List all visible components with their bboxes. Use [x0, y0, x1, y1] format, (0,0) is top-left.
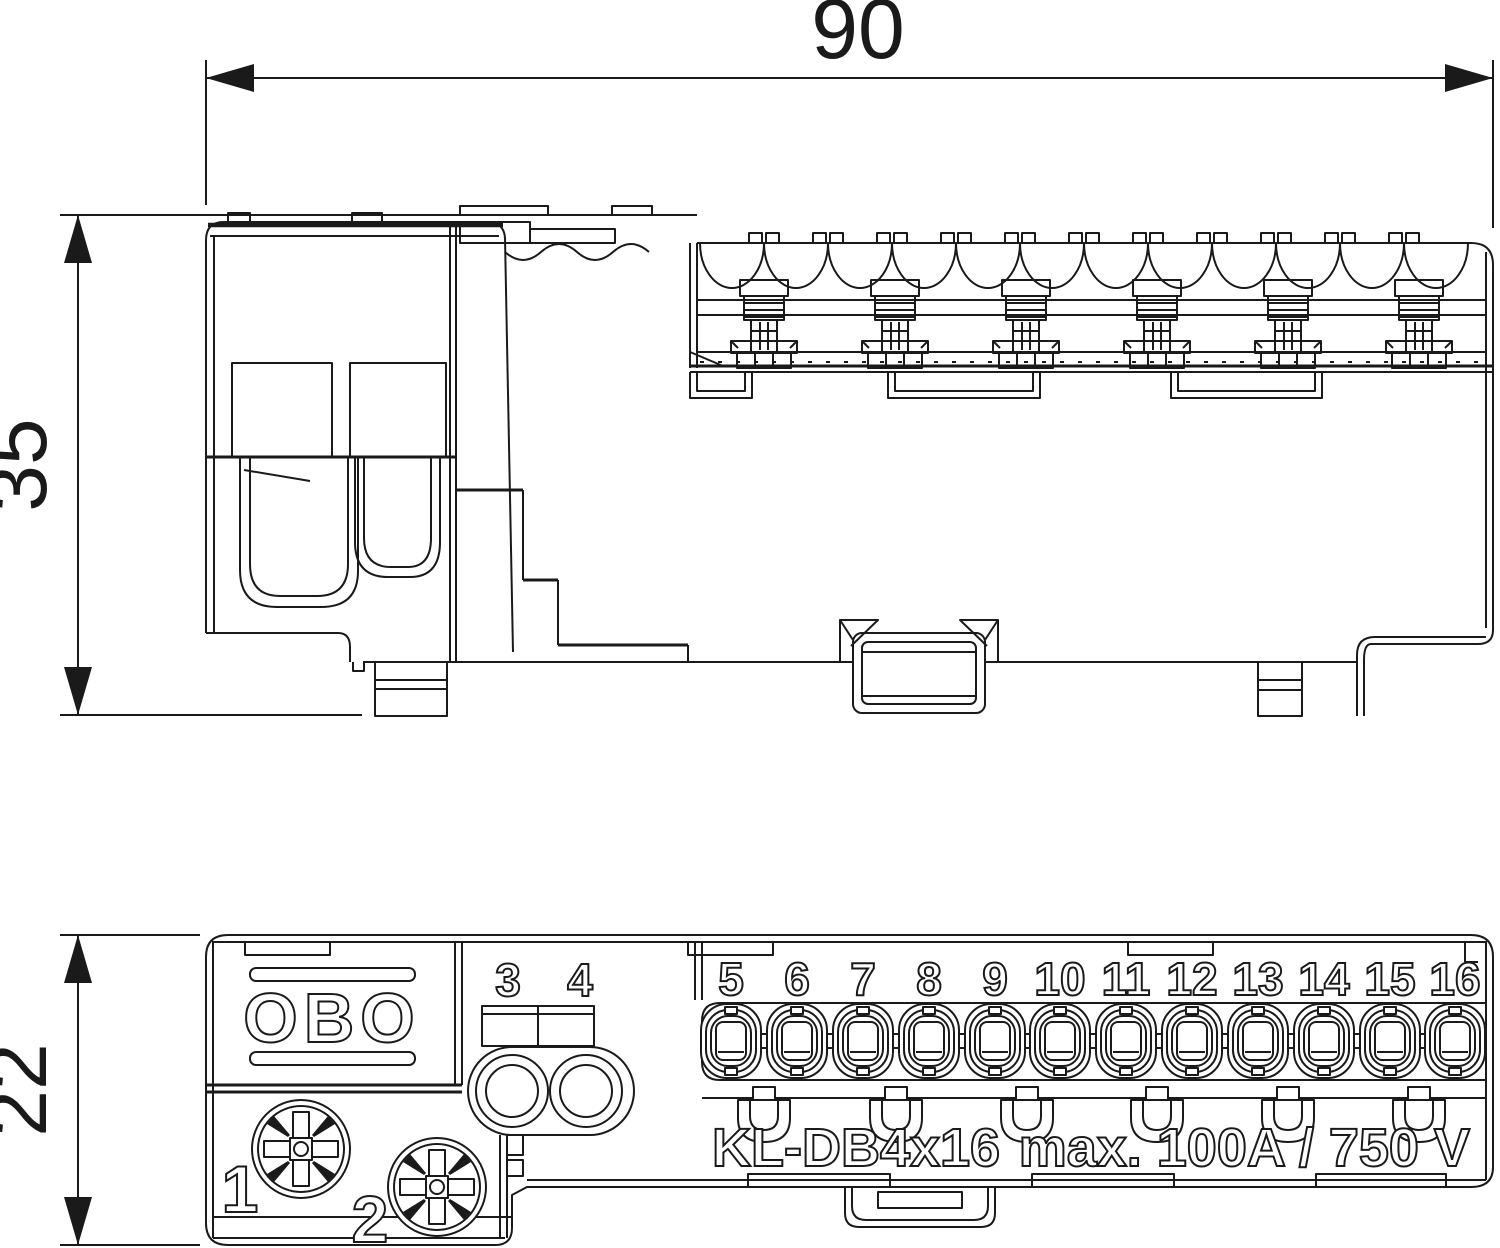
plan-view: OBO 3 4 1 2 — [206, 935, 1493, 1248]
obo-logo: OBO — [243, 979, 420, 1057]
dimension-depth-22: 22 — [0, 935, 200, 1245]
terminal-label: 10 — [1034, 953, 1085, 1005]
dim-width-label: 90 — [811, 0, 904, 76]
terminal-label: 11 — [1102, 953, 1151, 1005]
dimension-width-90: 90 — [206, 0, 1493, 228]
terminal-label: 9 — [982, 953, 1008, 1005]
port-3-label: 3 — [495, 954, 521, 1006]
terminal-label: 7 — [850, 953, 876, 1005]
technical-drawing: 90 35 22 — [0, 0, 1500, 1248]
terminal-label: 15 — [1364, 953, 1415, 1005]
dimension-height-35: 35 — [0, 215, 448, 715]
model-label: KL-DB4x16 — [712, 1118, 1000, 1178]
terminal-label: 13 — [1232, 953, 1283, 1005]
terminal-label: 6 — [784, 953, 810, 1005]
port-4-label: 4 — [567, 954, 593, 1006]
screw-1 — [252, 1100, 350, 1198]
dim-plan-depth-label: 22 — [0, 1043, 64, 1136]
screw-2 — [388, 1138, 486, 1236]
terminal-label: 12 — [1166, 953, 1217, 1005]
drawing-canvas: 90 35 22 — [0, 0, 1500, 1248]
din-clip-side — [840, 620, 998, 713]
screw-2-label: 2 — [352, 1182, 389, 1248]
terminal-label: 8 — [916, 953, 942, 1005]
terminal-label: 16 — [1429, 953, 1480, 1005]
dim-side-height-label: 35 — [0, 418, 64, 511]
terminal-label: 14 — [1298, 953, 1350, 1005]
rating-label: max. 100A / 750 V — [1019, 1118, 1470, 1178]
side-elevation-view — [206, 206, 1493, 716]
screw-1-label: 1 — [222, 1152, 259, 1226]
terminal-label: 5 — [718, 953, 744, 1005]
obo-logo-panel: OBO — [243, 968, 420, 1065]
din-clip-plan — [845, 1187, 995, 1227]
